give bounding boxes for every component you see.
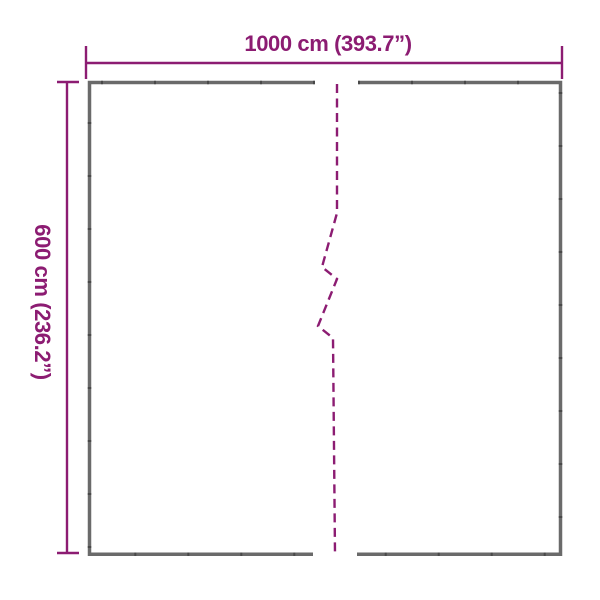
dimension-diagram: 1000 cm (393.7”) 600 cm (236.2”)	[0, 0, 600, 600]
height-dimension-label: 600 cm (236.2”)	[30, 224, 55, 380]
tarp-outline	[90, 83, 561, 555]
tarp-edge-right-section	[357, 83, 561, 555]
height-dimension-group	[57, 82, 79, 553]
width-dimension-label: 1000 cm (393.7”)	[244, 31, 411, 56]
tarp-edge-texture	[90, 83, 561, 555]
tarp-edge-left-section	[90, 83, 316, 555]
tarp-break-line	[318, 84, 337, 554]
dimension-diagram-canvas: 1000 cm (393.7”) 600 cm (236.2”)	[0, 0, 600, 600]
tarp-edge-texture-right	[357, 83, 561, 555]
tarp-edge-texture-left	[90, 83, 316, 555]
